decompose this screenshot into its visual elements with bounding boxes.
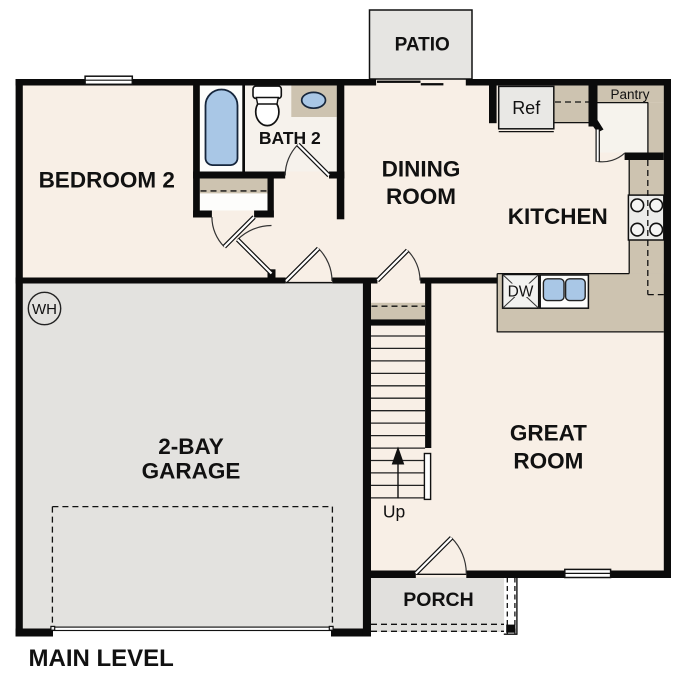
svg-text:2-BAY: 2-BAY [158,434,223,459]
svg-text:Up: Up [383,501,405,521]
svg-text:PORCH: PORCH [403,589,473,611]
svg-text:ROOM: ROOM [386,184,456,209]
svg-text:KITCHEN: KITCHEN [508,204,608,229]
svg-text:Ref: Ref [512,98,541,118]
svg-text:PATIO: PATIO [395,34,450,55]
svg-text:GARAGE: GARAGE [142,459,241,484]
svg-text:DINING: DINING [382,157,461,182]
svg-text:WH: WH [32,301,57,318]
svg-text:GREAT: GREAT [510,421,587,446]
svg-text:ROOM: ROOM [513,449,583,474]
svg-text:BATH 2: BATH 2 [259,128,321,148]
svg-text:MAIN LEVEL: MAIN LEVEL [29,645,174,672]
svg-text:DW: DW [508,283,534,300]
svg-text:Pantry: Pantry [610,87,649,102]
svg-text:BEDROOM 2: BEDROOM 2 [39,168,175,193]
